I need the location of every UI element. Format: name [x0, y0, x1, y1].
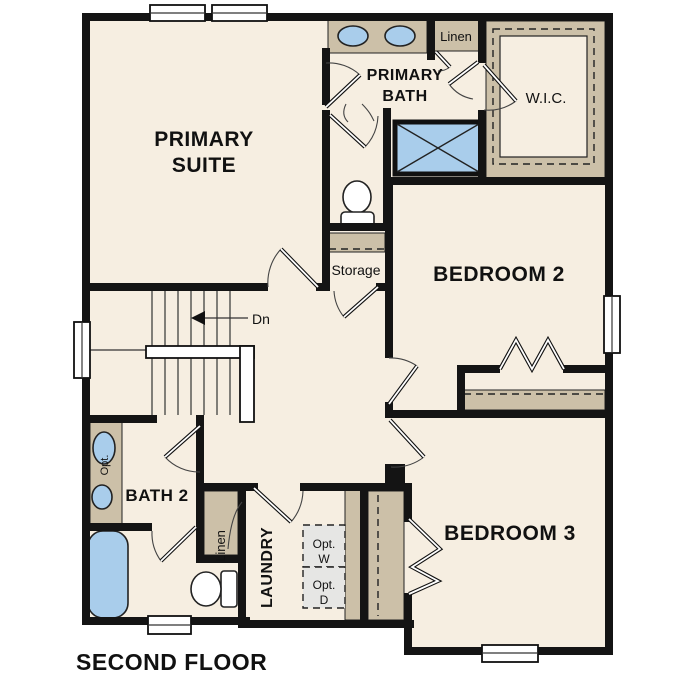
bedroom2-closet-shelf: [463, 390, 605, 410]
linen-lower-label: Linen: [213, 530, 228, 562]
primary-shower: [395, 122, 481, 174]
primary-suite-window-1: [150, 5, 205, 21]
laundry-label: LAUNDRY: [259, 527, 276, 608]
stair-window: [74, 322, 90, 378]
primary-suite-label-line1: PRIMARY: [154, 128, 254, 151]
primary-bath-sink-left: [338, 26, 368, 46]
bath2-window: [148, 616, 191, 634]
stairs-down-label: Dn: [252, 311, 270, 327]
linen-upper-label: Linen: [440, 29, 472, 44]
stair-railing-vertical: [240, 346, 254, 422]
bath2-toilet: [191, 571, 237, 607]
bedroom2-window: [604, 296, 620, 353]
bath2-label: BATH 2: [125, 486, 188, 505]
storage-label: Storage: [331, 262, 380, 278]
primary-suite-window-2: [212, 5, 267, 21]
wic-label: W.I.C.: [526, 90, 567, 107]
primary-bath-sink-right: [385, 26, 415, 46]
primary-toilet: [341, 181, 374, 227]
optional-dryer-label-line2: D: [320, 593, 329, 607]
primary-bath-label-line2: BATH: [382, 88, 427, 105]
bedroom3-label: BEDROOM 3: [444, 522, 576, 545]
stair-railing-horizontal: [146, 346, 254, 358]
bedroom2-label: BEDROOM 2: [433, 263, 565, 286]
bath2-tub: [88, 531, 128, 618]
bedroom3-window: [482, 645, 538, 662]
primary-suite-label-line2: SUITE: [172, 154, 236, 177]
primary-bath-label-line1: PRIMARY: [367, 67, 444, 84]
optional-dryer-label-line1: Opt.: [313, 578, 336, 592]
floor-plan-canvas: PRIMARY SUITE PRIMARY BATH Linen W.I.C. …: [0, 0, 687, 687]
optional-washer-label-line2: W: [318, 552, 330, 566]
bath2-sink: [92, 485, 112, 509]
bedroom3-closet-shelf: [368, 491, 404, 620]
optional-washer-label-line1: Opt.: [313, 537, 336, 551]
floor-title: SECOND FLOOR: [76, 649, 267, 675]
floor-plan-drawing: PRIMARY SUITE PRIMARY BATH Linen W.I.C. …: [0, 0, 687, 687]
bath2-optional-sink-label: Opt.: [99, 455, 111, 476]
